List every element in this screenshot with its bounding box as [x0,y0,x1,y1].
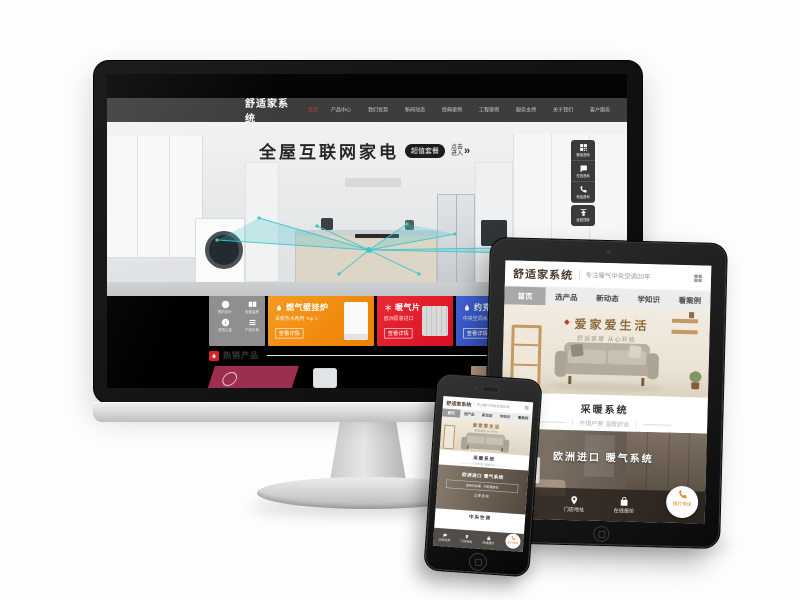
desktop-site-navbar: 舒适家系统 首页 产品中心 我们优势 新闻动态 经典案例 工程案例 服务支持 关… [107,98,627,122]
banner-seal-icon: ◆ [564,318,573,326]
bottombar-consult-button[interactable]: 立即咨询 [433,532,456,543]
desktop-nav-item-news[interactable]: 新闻动态 [405,106,425,113]
promo-card-maroon[interactable] [207,366,299,388]
tile-title: 暖气片 [395,302,421,313]
quick-links-tile: 预约设计 免费量房 门店查询 资质认证 产品手册 安装施工 [209,296,265,346]
banner-shape [628,345,642,359]
banner-sofa [461,432,510,452]
grid-menu-icon[interactable] [693,273,703,283]
banner-shape [689,371,701,382]
banner-title-text: 爱家爱生活 [574,317,649,333]
tablet-nav-news[interactable]: 新动态 [587,288,629,307]
banner-shape [564,363,648,376]
tile-subtitle: 欧洲原装进口 [384,315,413,322]
hero-title: 全屋互联网家电 [259,138,399,163]
radiator-product-image [422,306,448,336]
desktop-nav-item-about[interactable]: 关于我们 [553,106,573,113]
bottombar-label: 门店地址 [553,504,596,513]
banner-shape [570,344,583,357]
phone-speaker [482,386,499,393]
tablet-site-tagline: 专注暖气中央空调20年 [579,270,651,281]
tablet-home-button [593,526,609,542]
bottombar-label: 门店地址 [455,538,477,544]
tablet-nav-products[interactable]: 选产品 [545,287,587,306]
banner-shape [691,382,699,389]
tablet-nav-cases[interactable]: 看案例 [669,291,711,310]
divider [643,424,671,426]
phone-banner[interactable]: 爱家爱生活 舒适家居 从心开始 [440,416,532,455]
bottombar-label: 在线报价 [603,505,646,514]
quick-link-cert[interactable]: 资质认证 [213,318,237,336]
banner-plant [689,371,701,389]
tablet-camera [607,250,611,254]
hero-copy: 全屋互联网家电 超值套餐 点击 进入 » [259,138,470,163]
widget-label: 微信咨询 [576,152,589,157]
widget-label: 在线咨询 [576,173,589,178]
heating-section-subtitle-text: 不惧严寒 温暖舒适 [579,418,629,428]
widget-wechat-button[interactable]: 微信咨询 [571,140,595,161]
hot-products-title: 热销产品 [223,350,259,361]
banner-shape [467,445,469,449]
banner-shape [501,448,503,452]
banner-shape [514,344,538,347]
widget-phone-button[interactable]: 电话咨询 [571,182,595,203]
tile-radiator[interactable]: 暖气片 欧洲原装进口 查看详情 [377,296,453,346]
tick: 丨 [569,418,575,427]
hot-products-header: 热销产品 [209,350,259,361]
widget-label: 电话咨询 [576,194,589,199]
hero-cta-arrow-icon: » [464,145,470,157]
bottombar-label: 立即咨询 [433,537,455,543]
bottombar-store-button[interactable]: 门店地址 [455,534,478,545]
desktop-site-topbar [107,74,627,98]
phone-site-tagline: 专注暖气中央空调20年 [474,402,510,409]
banner-shape [641,378,644,386]
banner-shape [514,364,538,367]
desktop-nav-item-customers[interactable]: 客户服务 [590,106,610,113]
promo-card-icon [220,372,239,386]
tick: 丨 [633,420,639,429]
tile-title: 燃气壁挂炉 [286,302,329,313]
quick-link-design[interactable]: 预约设计 [213,300,237,318]
call-button-label: 拨打电话 [670,500,695,508]
desktop-nav-item-advantage[interactable]: 我们优势 [368,106,388,113]
phone-home-button [468,552,487,571]
call-button-label: 拨打电话 [505,540,520,545]
tablet-nav-knowledge[interactable]: 学知识 [628,290,670,309]
divider [497,465,507,466]
phone-site-logo: 舒适家系统 [446,399,471,408]
floating-service-widget: 微信咨询 在线咨询 电话咨询 返回顶部 [571,140,595,226]
quick-link-label: 免费量房 [245,309,259,314]
divider [461,463,471,464]
desktop-site-logo: 舒适家系统 [245,95,294,125]
banner-shape [568,376,571,384]
tile-gas-boiler[interactable]: 燃气壁挂炉 采暖热水两用 Top 1 查看详情 [268,296,374,346]
hero-cta-line2: 进入 [451,151,463,157]
tile-button[interactable]: 查看详情 [384,328,413,339]
divider [537,421,565,423]
phone-screen: 舒适家系统 专注暖气中央空调20年 首页 选产品 新动态 学知识 看案例 [433,396,533,552]
quick-link-measure[interactable]: 免费量房 [240,300,264,318]
phone-heating-card[interactable]: 欧洲进口 暖气系统 即热式采暖 · 节能更舒适 立即咨询 [436,464,529,514]
tile-button[interactable]: 查看详情 [275,328,304,339]
quick-link-label: 产品手册 [245,327,259,332]
bottombar-quote-button[interactable]: 在线报价 [477,535,500,546]
flame-icon [209,351,219,361]
phone-device: 舒适家系统 专注暖气中央空调20年 首页 选产品 新动态 学知识 看案例 [423,373,543,578]
tablet-site-logo: 舒适家系统 [513,265,573,283]
desktop-nav-item-home[interactable]: 首页 [308,106,318,113]
widget-backtop-button[interactable]: 返回顶部 [571,205,595,226]
phone-camera [475,386,478,389]
bottombar-label: 在线报价 [477,540,499,546]
quick-link-manual[interactable]: 产品手册 [240,318,264,336]
tile-subtitle: 采暖热水两用 Top 1 [275,315,318,322]
banner-sofa [554,342,659,387]
hero-badge: 超值套餐 [405,144,445,158]
quick-link-label: 资质认证 [218,327,232,332]
desktop-nav-item-projects[interactable]: 工程案例 [479,106,499,113]
boiler-product-image [344,302,368,340]
desktop-nav-item-classic-cases[interactable]: 经典案例 [442,106,462,113]
bottombar-quote-button[interactable]: 在线报价 [599,495,649,515]
hamburger-menu-icon[interactable] [524,405,529,410]
desktop-nav-item-products[interactable]: 产品中心 [331,106,351,113]
desktop-main-menu: 首页 产品中心 我们优势 新闻动态 经典案例 工程案例 服务支持 关于我们 客户… [308,105,627,115]
product-ac-image[interactable] [313,368,337,388]
hero-cta-button[interactable]: 点击 进入 » [451,145,470,157]
bottombar-store-button[interactable]: 门店地址 [549,494,599,514]
quick-link-label: 预约设计 [218,309,232,314]
quick-links-grid: 预约设计 免费量房 门店查询 资质认证 产品手册 安装施工 [209,296,265,336]
widget-label: 返回顶部 [576,217,589,222]
desktop-nav-item-service[interactable]: 服务支持 [516,106,536,113]
widget-chat-button[interactable]: 在线咨询 [571,161,595,182]
tablet-nav-home[interactable]: 首页 [504,286,546,305]
phone-site: 舒适家系统 专注暖气中央空调20年 首页 选产品 新动态 学知识 看案例 [433,396,533,552]
